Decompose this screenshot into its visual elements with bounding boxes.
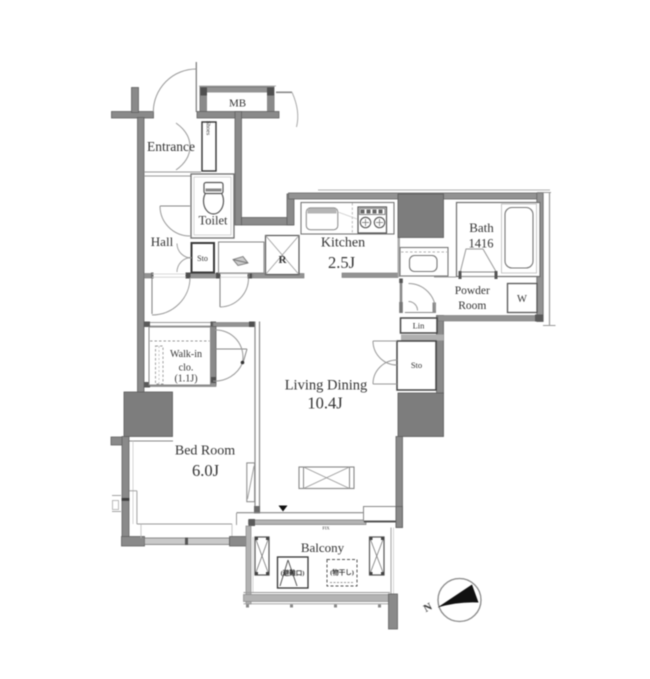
svg-text:Bath: Bath	[469, 220, 494, 235]
svg-text:Sto: Sto	[411, 360, 422, 370]
svg-text:6.0J: 6.0J	[192, 461, 220, 480]
svg-text:Lin: Lin	[413, 320, 426, 330]
svg-text:FIX: FIX	[322, 525, 330, 530]
svg-text:Powder: Powder	[455, 285, 490, 297]
svg-text:(避難口): (避難口)	[281, 568, 305, 577]
svg-text:2.5J: 2.5J	[328, 253, 356, 272]
svg-text:clo.: clo.	[179, 362, 194, 373]
svg-text:Toilet: Toilet	[199, 213, 229, 227]
svg-text:Entrance: Entrance	[147, 139, 195, 154]
svg-text:MB: MB	[229, 97, 246, 109]
svg-text:Hall: Hall	[151, 234, 174, 249]
svg-text:1416: 1416	[468, 236, 493, 250]
svg-text:Shoes: Shoes	[205, 121, 211, 136]
svg-text:Living Dining: Living Dining	[285, 377, 368, 393]
svg-text:R: R	[279, 254, 288, 266]
svg-text:Room: Room	[458, 300, 486, 312]
svg-text:(1.1J): (1.1J)	[174, 373, 197, 384]
svg-text:W: W	[517, 294, 527, 305]
svg-text:10.4J: 10.4J	[307, 393, 343, 412]
svg-text:Kitchen: Kitchen	[321, 235, 365, 250]
svg-text:Bed Room: Bed Room	[175, 443, 235, 458]
svg-text:Balcony: Balcony	[301, 540, 345, 555]
svg-text:Walk-in: Walk-in	[170, 349, 202, 360]
svg-text:(物干し): (物干し)	[330, 567, 354, 576]
svg-text:Sto: Sto	[197, 254, 208, 263]
